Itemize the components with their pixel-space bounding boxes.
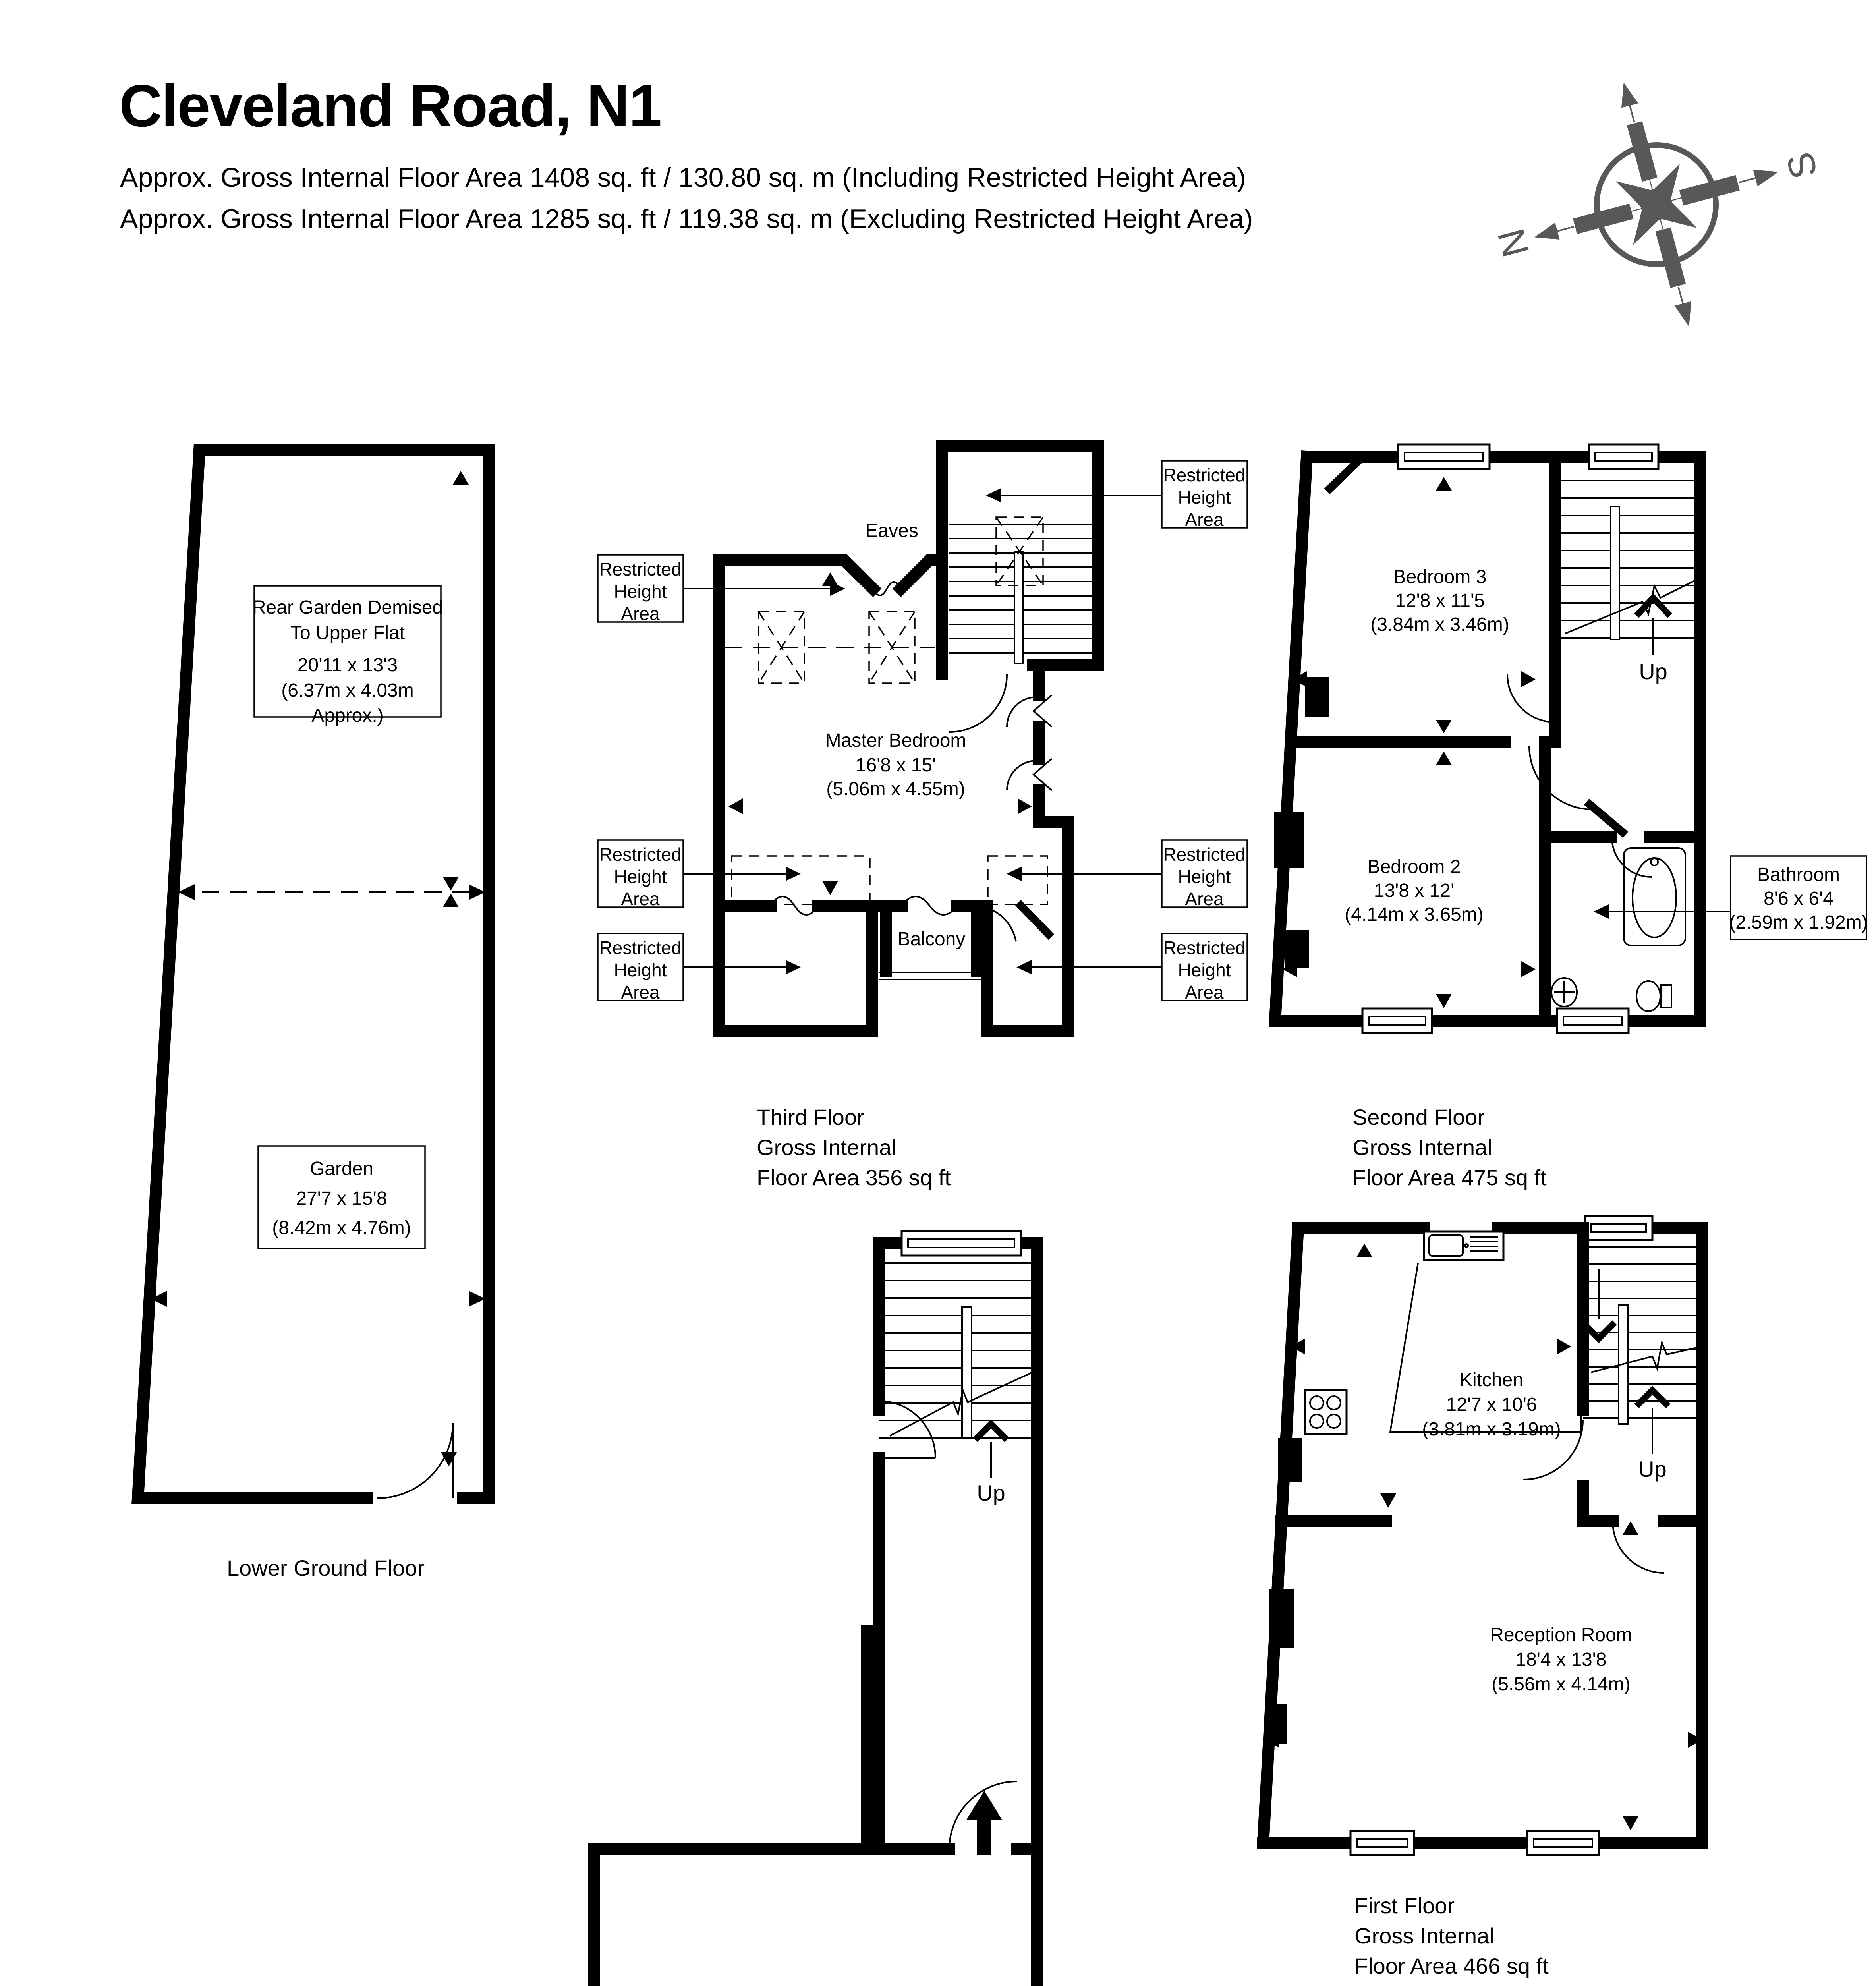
kitchen-sink (1424, 1231, 1503, 1260)
svg-text:Height: Height (1178, 960, 1231, 980)
window-squiggle (771, 896, 818, 915)
arrow-left-icon (728, 798, 743, 814)
reception-name: Reception Room (1490, 1625, 1632, 1646)
svg-text:Restricted: Restricted (1163, 937, 1245, 958)
svg-text:Height: Height (614, 960, 667, 980)
chimney-breast (1305, 677, 1329, 717)
arrow-down-icon (1380, 1493, 1396, 1508)
closet-door-arcs (1007, 697, 1037, 790)
arrow-left-icon (178, 884, 195, 900)
party-wall (861, 1625, 879, 1849)
lower-ground-caption: Lower Ground Floor (135, 1553, 516, 1583)
third-top-wall (719, 560, 873, 589)
arrow-down-icon (1436, 720, 1452, 733)
bedroom2-dims-imperial: 13'8 x 12' (1374, 880, 1454, 901)
svg-text:Height: Height (614, 866, 667, 887)
compass-south-label: S (1779, 148, 1826, 183)
master-bedroom-name: Master Bedroom (825, 730, 966, 751)
stairs (879, 1263, 1037, 1438)
arrow-right-icon (1018, 798, 1032, 814)
restricted-label-left-bottom: Restricted Height Area (598, 933, 801, 1003)
restricted-label-right-bottom: Restricted Height Area (1016, 933, 1247, 1003)
bedroom2-dims-metric: (4.14m x 3.65m) (1345, 904, 1483, 925)
arrow-down-icon (1436, 994, 1452, 1008)
arrow-right-icon (469, 884, 485, 900)
svg-text:Restricted: Restricted (599, 844, 681, 865)
restricted-label-left-mid: Restricted Height Area (598, 840, 801, 909)
ground-floorplan: Up Bike Storage (548, 1215, 1065, 1986)
stairs (949, 524, 1092, 663)
yard-walls (594, 1849, 1037, 1986)
first-left-wall (1263, 1228, 1298, 1843)
up-label: Up (977, 1480, 1005, 1505)
door-jamb (1021, 906, 1049, 934)
rear-garden-dims-imperial: 20'11 x 13'3 (298, 655, 398, 676)
first-floor-caption: First Floor Gross Internal Floor Area 46… (1354, 1891, 1549, 1981)
arrow-right-icon (1521, 671, 1536, 687)
bedroom3-dims-metric: (3.84m x 3.46m) (1370, 614, 1509, 635)
svg-text:Area: Area (621, 982, 660, 1003)
bathroom-label-box: Bathroom 8'6 x 6'4 (2.59m x 1.92m) (1594, 856, 1868, 939)
hob (1305, 1390, 1347, 1434)
bathroom-dims-imperial: 8'6 x 6'4 (1764, 888, 1833, 909)
door-arc (879, 1401, 935, 1458)
bathtub (1624, 848, 1685, 945)
svg-text:Area: Area (1185, 889, 1224, 909)
kitchen-name: Kitchen (1460, 1370, 1523, 1391)
svg-text:Area: Area (1185, 982, 1224, 1003)
arrow-right-icon (1557, 1339, 1571, 1354)
kitchen-dims-imperial: 12'7 x 10'6 (1446, 1394, 1537, 1415)
up-arrow-icon (1636, 598, 1670, 616)
page-title: Cleveland Road, N1 (119, 71, 661, 140)
bedroom3-dims-imperial: 12'8 x 11'5 (1395, 590, 1485, 611)
door-arc (1529, 746, 1593, 809)
svg-text:Height: Height (1178, 487, 1231, 508)
window (902, 1231, 1021, 1256)
arrow-up-icon (1436, 477, 1452, 491)
arrow-right-icon (469, 1291, 485, 1307)
svg-text:Restricted: Restricted (599, 937, 681, 958)
window (1350, 1216, 1652, 1855)
floor-area-excluding: Approx. Gross Internal Floor Area 1285 s… (120, 203, 1253, 234)
restricted-label-right-mid: Restricted Height Area (1007, 840, 1247, 909)
compass-north-label: N (1490, 224, 1538, 261)
arrow-up-icon (453, 471, 469, 485)
third-floorplan: Restricted Height Area Restricted Height… (576, 417, 1291, 1108)
compass-rose-icon: N S (1505, 48, 1807, 357)
svg-text:Height: Height (614, 581, 667, 602)
eaves-label: Eaves (865, 520, 918, 541)
reception-dims-metric: (5.56m x 4.14m) (1492, 1674, 1630, 1695)
svg-text:Area: Area (621, 603, 660, 624)
bedroom3-name: Bedroom 3 (1393, 566, 1487, 587)
rear-garden-dims-metric: (6.37m x 4.03m (281, 680, 413, 701)
svg-text:Restricted: Restricted (599, 559, 681, 580)
svg-text:Area: Area (1185, 509, 1224, 530)
svg-text:Area: Area (621, 889, 660, 909)
rear-garden-name2: To Upper Flat (290, 622, 405, 643)
up-label: Up (1639, 659, 1667, 684)
restricted-label-right-top: Restricted Height Area (986, 461, 1247, 530)
door-jamb (1590, 804, 1623, 832)
chimney-breast (1269, 1589, 1294, 1648)
arrow-down-icon (822, 881, 838, 895)
first-floorplan: Up Kitchen 12'7 x 10'6 (3.81m x 3.19m) R… (1231, 1215, 1787, 1891)
bathroom-dims-metric: (2.59m x 1.92m) (1729, 912, 1868, 933)
svg-text:Restricted: Restricted (1163, 844, 1245, 865)
entrance-arrow-icon (966, 1791, 1002, 1855)
chimney-breast (1278, 1438, 1302, 1482)
up-label: Up (1638, 1457, 1667, 1482)
second-floor-caption: Second Floor Gross Internal Floor Area 4… (1352, 1102, 1547, 1193)
reception-dims-imperial: 18'4 x 13'8 (1515, 1649, 1606, 1670)
arrow-right-icon (1521, 961, 1536, 977)
door-jamb (1330, 462, 1358, 489)
restricted-dashed-left (732, 856, 870, 904)
svg-text:Height: Height (1178, 866, 1231, 887)
toilet (1636, 981, 1671, 1011)
sink (1551, 978, 1577, 1007)
master-bedroom-dims-metric: (5.06m x 4.55m) (826, 779, 965, 800)
balcony-door-squiggle (902, 896, 957, 915)
floorplan-page: Cleveland Road, N1 Approx. Gross Interna… (0, 0, 1876, 1986)
third-floor-caption: Third Floor Gross Internal Floor Area 35… (757, 1102, 951, 1193)
garden-dims-imperial: 27'7 x 15'8 (296, 1188, 387, 1209)
arrow-up-icon (1623, 1521, 1638, 1535)
rear-garden-name: Rear Garden Demised (252, 597, 443, 618)
arrow-down-icon (1623, 1816, 1638, 1830)
restricted-dashed-right (988, 856, 1047, 904)
balcony-label: Balcony (898, 929, 966, 950)
kitchen-dims-metric: (3.81m x 3.19m) (1422, 1419, 1561, 1440)
master-bedroom-dims-imperial: 16'8 x 15' (856, 755, 936, 776)
up-arrow-icon (1636, 1390, 1668, 1406)
stairs (1555, 481, 1700, 639)
arrow-up-icon (443, 894, 459, 907)
bedroom-divider-wall (1291, 651, 1555, 742)
rear-garden-approx: Approx.) (311, 705, 383, 726)
chimney-breast (1274, 812, 1304, 868)
stair-door-arc (949, 674, 1007, 732)
bathroom-name: Bathroom (1757, 864, 1840, 885)
arrow-down-icon (443, 877, 459, 891)
second-floorplan: Up (1251, 417, 1876, 1108)
arrow-up-icon (1436, 752, 1452, 765)
garden-name: Garden (310, 1158, 373, 1179)
lower-ground-floorplan: Rear Garden Demised To Upper Flat 20'11 … (135, 433, 516, 1529)
garden-dims-metric: (8.42m x 4.76m) (272, 1217, 411, 1238)
bedroom2-name: Bedroom 2 (1368, 856, 1461, 877)
svg-text:Restricted: Restricted (1163, 465, 1245, 485)
arrow-up-icon (1356, 1244, 1372, 1257)
door-arc (1613, 1521, 1664, 1573)
floor-area-including: Approx. Gross Internal Floor Area 1408 s… (120, 162, 1246, 193)
